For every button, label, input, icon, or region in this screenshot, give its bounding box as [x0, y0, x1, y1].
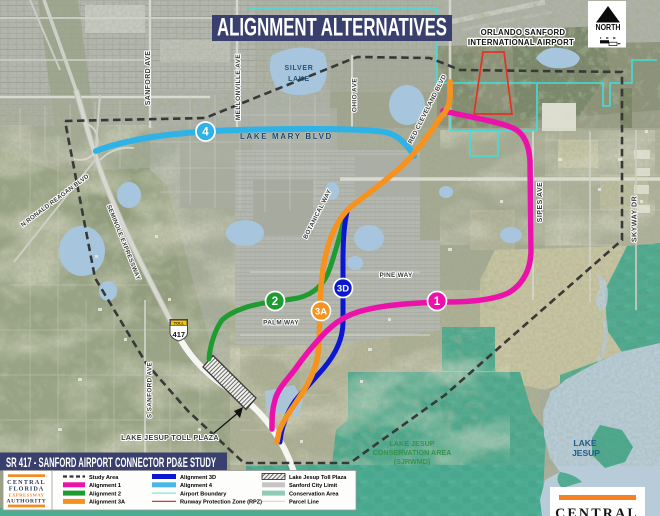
svg-text:SKYWAY DR: SKYWAY DR: [630, 195, 639, 242]
svg-text:CENTRAL: CENTRAL: [555, 507, 639, 516]
svg-text:CONSERVATION AREA: CONSERVATION AREA: [373, 448, 452, 457]
svg-text:LAKE MARY BLVD: LAKE MARY BLVD: [240, 132, 333, 141]
svg-text:AUTHORITY: AUTHORITY: [7, 499, 47, 505]
svg-text:LAKE: LAKE: [288, 76, 310, 83]
svg-text:Sanford City Limit: Sanford City Limit: [289, 483, 337, 489]
svg-text:PINE WAY: PINE WAY: [379, 272, 412, 279]
svg-text:FLORIDA: FLORIDA: [9, 486, 45, 493]
svg-text:(SJRWMD): (SJRWMD): [394, 457, 431, 466]
svg-text:NORTH: NORTH: [596, 22, 621, 32]
svg-text:Alignment 1: Alignment 1: [89, 483, 121, 489]
svg-text:417: 417: [173, 330, 186, 339]
svg-text:SILVER: SILVER: [285, 65, 314, 72]
svg-text:EXPRESSWAY: EXPRESSWAY: [9, 493, 45, 498]
svg-text:Alignment 2: Alignment 2: [89, 491, 121, 497]
svg-text:4: 4: [202, 127, 209, 139]
svg-text:SANFORD AVE: SANFORD AVE: [145, 51, 152, 106]
svg-text:Study Area: Study Area: [89, 475, 119, 481]
svg-text:Alignment 4: Alignment 4: [180, 483, 213, 489]
svg-text:S SANFORD AVE: S SANFORD AVE: [147, 362, 154, 418]
svg-text:Runway Protection Zone (RPZ): Runway Protection Zone (RPZ): [180, 500, 262, 506]
svg-text:Conservation Area: Conservation Area: [289, 491, 339, 497]
svg-text:Airport Boundary: Airport Boundary: [180, 491, 227, 497]
svg-text:Alignment 3A: Alignment 3A: [89, 500, 125, 506]
svg-text:LAKE: LAKE: [573, 438, 596, 448]
svg-text:ORLANDO SANFORD: ORLANDO SANFORD: [481, 28, 566, 37]
svg-text:JESUP: JESUP: [572, 448, 600, 458]
svg-text:1: 1: [434, 296, 441, 308]
svg-text:SIPES AVE: SIPES AVE: [537, 182, 544, 223]
svg-text:3D: 3D: [337, 284, 349, 295]
svg-text:TOLL: TOLL: [174, 321, 185, 326]
svg-text:OHIO AVE: OHIO AVE: [352, 78, 359, 113]
svg-text:3A: 3A: [315, 307, 327, 318]
svg-text:MELLONVILLE AVE: MELLONVILLE AVE: [235, 54, 242, 121]
svg-text:INTERNATIONAL AIRPORT: INTERNATIONAL AIRPORT: [468, 38, 574, 47]
svg-text:Lake Jesup Toll Plaza: Lake Jesup Toll Plaza: [289, 475, 347, 481]
svg-text:LAKE JESUP: LAKE JESUP: [389, 439, 434, 448]
svg-text:SR 417 - SANFORD AIRPORT CONNE: SR 417 - SANFORD AIRPORT CONNECTOR PD&E …: [6, 454, 216, 470]
svg-text:LAKE JESUP TOLL PLAZA: LAKE JESUP TOLL PLAZA: [121, 433, 219, 442]
svg-text:2: 2: [272, 296, 278, 308]
svg-text:ALIGNMENT ALTERNATIVES: ALIGNMENT ALTERNATIVES: [217, 14, 447, 42]
svg-text:Alignment 3D: Alignment 3D: [180, 475, 216, 481]
svg-text:Parcel Line: Parcel Line: [289, 500, 319, 506]
svg-text:PALM WAY: PALM WAY: [263, 320, 299, 327]
